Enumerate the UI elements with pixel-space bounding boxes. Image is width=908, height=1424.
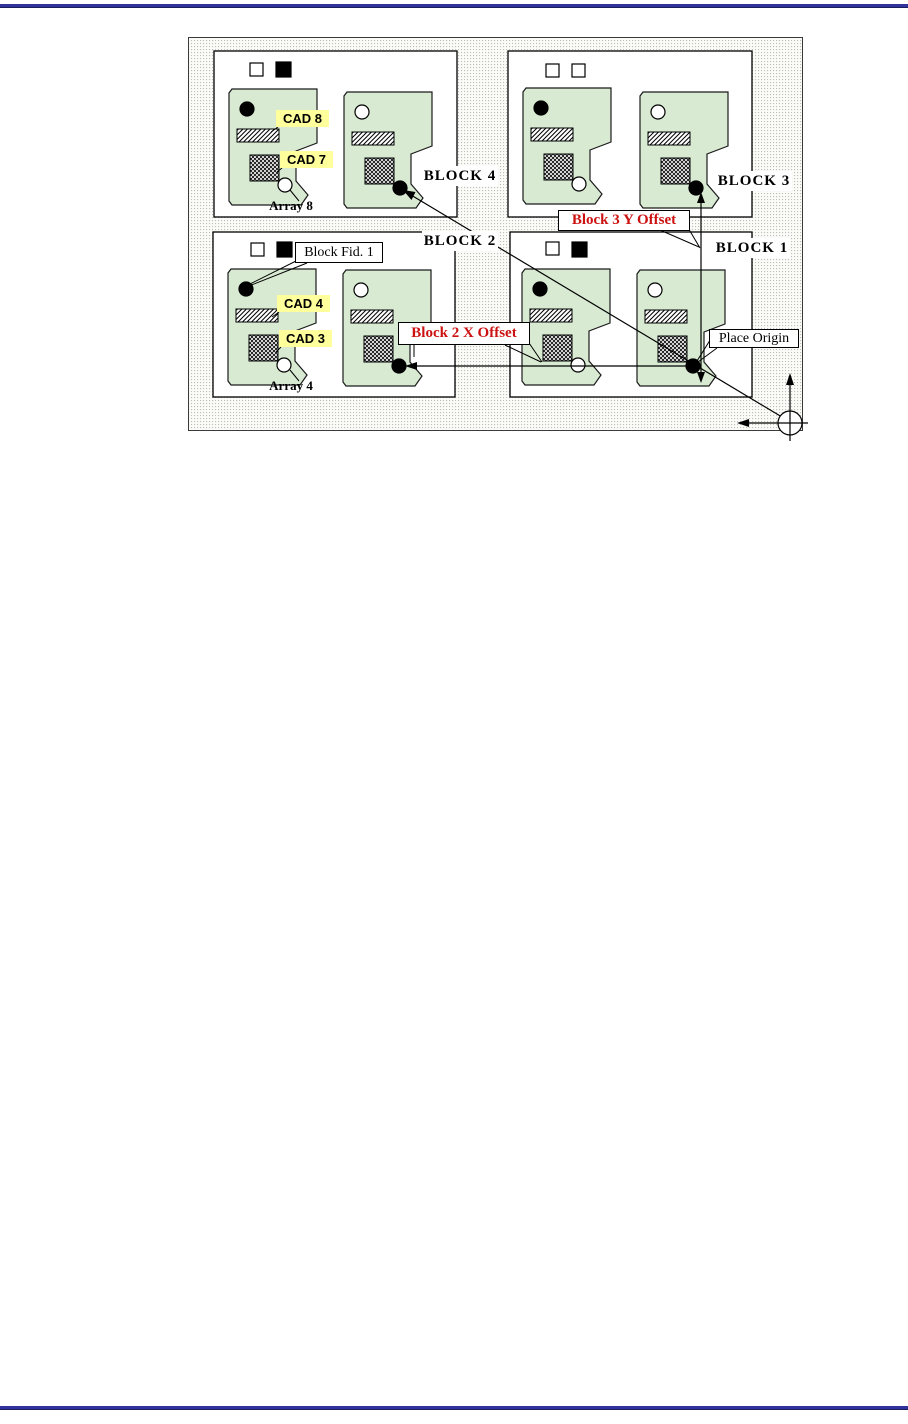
tooling-hole [648, 283, 662, 297]
block2-x-offset-callout: Block 2 X Offset [398, 322, 530, 345]
tooling-hole [571, 358, 585, 372]
block-fid-1-callout: Block Fid. 1 [295, 242, 383, 263]
tooling-hole [354, 283, 368, 297]
block1-label: BLOCK 1 [714, 238, 790, 258]
fiducial-square-open [546, 64, 559, 77]
block4-label: BLOCK 4 [422, 166, 498, 186]
block2-label: BLOCK 2 [422, 231, 498, 251]
cad8-label: CAD 8 [276, 110, 329, 127]
fiducial-square-filled [277, 242, 292, 257]
cad3-label: CAD 3 [279, 330, 332, 347]
array4-label: Array 4 [262, 379, 320, 393]
tooling-hole [355, 105, 369, 119]
place-origin-callout: Place Origin [709, 329, 799, 348]
tooling-hole [278, 178, 292, 192]
fiducial-dot [533, 282, 547, 296]
fiducial-dot-block2 [392, 359, 406, 373]
page-top-rule [0, 4, 908, 8]
document-page: BLOCK 4 BLOCK 3 BLOCK 2 BLOCK 1 CAD 8 CA… [0, 0, 908, 1424]
fiducial-square-filled [572, 242, 587, 257]
fiducial-square-open [546, 242, 559, 255]
fiducial-dot-block4 [393, 181, 407, 195]
fiducial-dot [534, 101, 548, 115]
cad7-label: CAD 7 [280, 151, 333, 168]
cad4-label: CAD 4 [277, 295, 330, 312]
block3-label: BLOCK 3 [716, 171, 792, 191]
fiducial-square-open [572, 64, 585, 77]
fiducial-square-open [251, 243, 264, 256]
page-bottom-rule [0, 1406, 908, 1410]
fiducial-dot [240, 102, 254, 116]
tooling-hole [651, 105, 665, 119]
block3-y-offset-callout: Block 3 Y Offset [558, 210, 690, 231]
tooling-hole [277, 358, 291, 372]
tooling-hole [572, 177, 586, 191]
fiducial-square-filled [276, 62, 291, 77]
fiducial-square-open [250, 63, 263, 76]
array8-label: Array 8 [262, 199, 320, 213]
